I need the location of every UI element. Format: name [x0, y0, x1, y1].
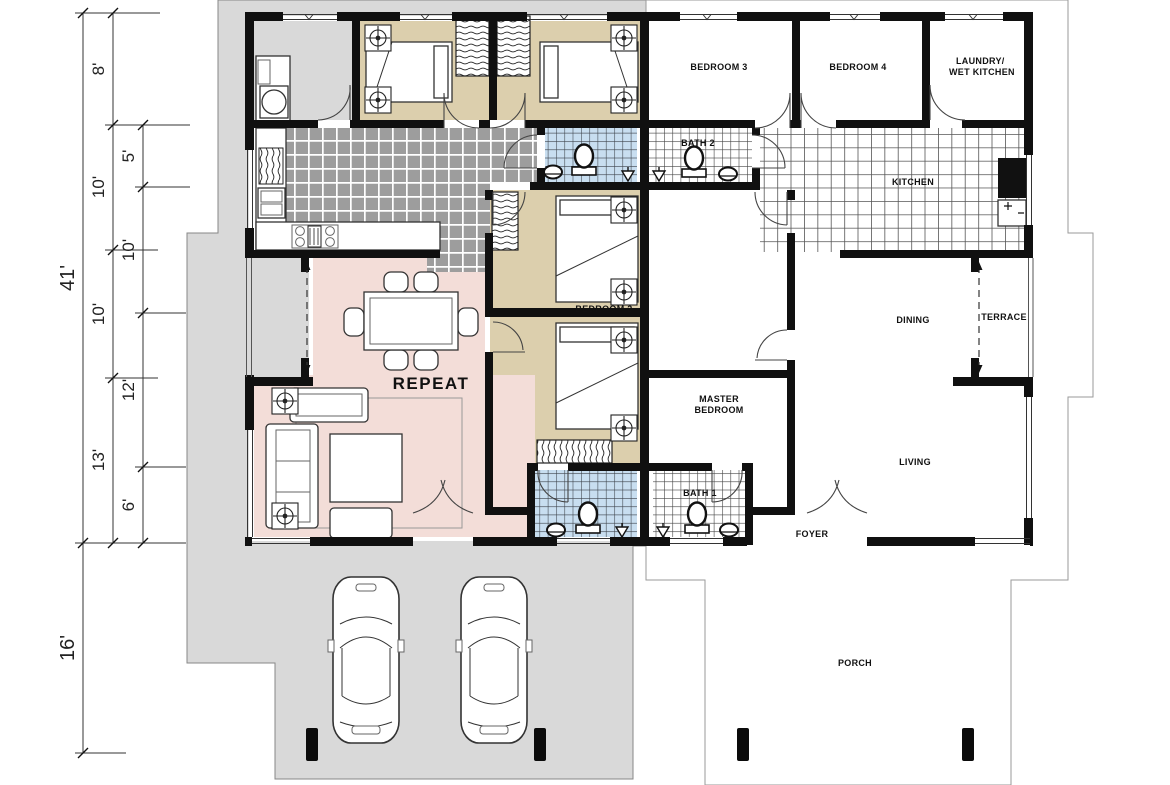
toilet-icon [576, 503, 600, 534]
wardrobe-icon [492, 192, 518, 250]
terrace-left-floor [249, 258, 309, 377]
laundry-shelf [258, 60, 270, 84]
car-icon [456, 577, 532, 743]
room-label-bath2: BATH 2 [681, 138, 715, 148]
room-label-foyer: FOYER [796, 529, 829, 539]
dim-41ft: 41' [57, 265, 79, 291]
wardrobe-icon [456, 16, 489, 76]
room-label-laundry-line2: WET KITCHEN [949, 67, 1015, 77]
stove-right-icon [998, 158, 1026, 198]
room-label-porch: PORCH [838, 658, 872, 668]
sink-bowl [261, 191, 282, 202]
floor-plan-page: BEDROOM 3 BEDROOM 4 LAUNDRY/ WET KITCHEN… [0, 0, 1170, 785]
toilet-icon [682, 147, 706, 178]
toilet-icon [572, 145, 596, 176]
porch-pillar [534, 728, 546, 761]
room-label-living: LIVING [899, 457, 931, 467]
car-icon [328, 577, 404, 743]
room-label-terrace: TERRACE [981, 312, 1027, 322]
stove-icon [292, 225, 338, 248]
dim-12ft: 12' [119, 379, 138, 401]
fridge-icon [259, 148, 283, 184]
repeat-note: REPEAT [393, 374, 470, 393]
ceiling-fan-icon [611, 25, 637, 51]
ceiling-fan-icon [611, 279, 637, 305]
ceiling-fan-icon [611, 87, 637, 113]
floor-plan-drawing: BEDROOM 3 BEDROOM 4 LAUNDRY/ WET KITCHEN… [0, 0, 1170, 785]
ceiling-fan-icon [611, 327, 637, 353]
kitchen-right-tiled-floor [760, 128, 1027, 252]
room-label-laundry-line1: LAUNDRY/ [956, 56, 1005, 66]
toilet-icon [685, 503, 709, 534]
ceiling-fan-icon [611, 415, 637, 441]
room-label-bedroom2: BEDROOM 2 [575, 304, 632, 314]
room-label-bedroom4: BEDROOM 4 [829, 62, 886, 72]
sink-icon [544, 166, 562, 179]
dim-13ft: 13' [89, 449, 108, 471]
sink-bowl [261, 204, 282, 215]
room-label-bedroom3: BEDROOM 3 [690, 62, 747, 72]
room-label-kitchen: KITCHEN [892, 177, 934, 187]
dim-5ft: 5' [119, 150, 138, 163]
ceiling-fan-icon [365, 87, 391, 113]
dim-10ft: 10' [89, 176, 108, 198]
dim-10ft: 10' [89, 303, 108, 325]
sink-icon [720, 524, 738, 537]
ceiling-fan-icon [611, 197, 637, 223]
porch-pillar [306, 728, 318, 761]
ceiling-fan-icon [272, 388, 298, 414]
ceiling-fan-icon [272, 503, 298, 529]
room-label-dining: DINING [896, 315, 929, 325]
sink-icon [719, 168, 737, 181]
sink-icon [547, 524, 565, 537]
washer-icon [262, 90, 286, 114]
room-label-master-line1: MASTER [699, 394, 739, 404]
dimension-annotations: 41' 16' 8' 10' 10' 13' 5' 10' 12' 6' [57, 8, 190, 758]
room-label-bath1: BATH 1 [683, 488, 717, 498]
dim-6ft: 6' [119, 499, 138, 512]
dim-16ft: 16' [57, 635, 79, 661]
dim-8ft: 8' [89, 63, 108, 76]
kitchen-bottom-counter [256, 222, 440, 250]
porch-pillar [737, 728, 749, 761]
porch-pillar [962, 728, 974, 761]
ceiling-fan-icon [365, 25, 391, 51]
dim-10ft: 10' [119, 239, 138, 261]
walk-in-robe-icon [537, 440, 612, 463]
room-label-master-line2: BEDROOM [694, 405, 743, 415]
wardrobe-icon [497, 16, 530, 76]
